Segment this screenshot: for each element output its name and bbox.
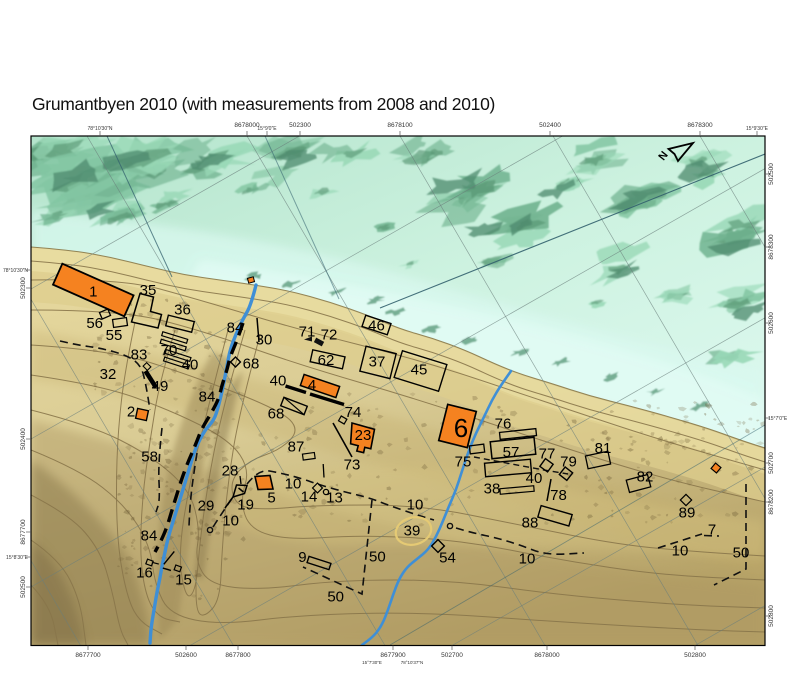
svg-text:36: 36 [174,302,191,319]
svg-text:62: 62 [318,352,335,369]
svg-text:87: 87 [288,439,305,456]
svg-text:10: 10 [285,476,302,493]
svg-text:78°10′37″N: 78°10′37″N [401,660,424,665]
svg-text:75: 75 [455,454,472,471]
svg-text:5: 5 [267,490,275,507]
svg-text:74: 74 [345,404,362,421]
svg-text:15°9′30″E: 15°9′30″E [746,126,769,132]
svg-text:16: 16 [136,565,153,582]
svg-text:19: 19 [237,497,254,514]
svg-text:8677900: 8677900 [380,652,406,659]
svg-text:73: 73 [344,457,361,474]
svg-text:84: 84 [141,528,158,545]
svg-text:8677700: 8677700 [75,652,101,659]
svg-text:8678200: 8678200 [768,489,775,515]
svg-text:8677700: 8677700 [20,519,27,545]
svg-text:78°10′30″N: 78°10′30″N [87,126,112,132]
svg-text:40: 40 [526,470,543,487]
svg-text:72: 72 [321,327,338,344]
svg-text:40: 40 [270,373,287,390]
svg-text:15°7′0″E: 15°7′0″E [768,416,788,422]
svg-text:68: 68 [268,406,285,423]
svg-text:502500: 502500 [768,163,775,185]
svg-text:37: 37 [369,354,386,371]
svg-text:6: 6 [454,413,468,443]
svg-text:56: 56 [86,315,103,332]
svg-text:8678100: 8678100 [387,122,413,129]
svg-text:502700: 502700 [768,452,775,474]
svg-text:502800: 502800 [768,605,775,627]
svg-text:502400: 502400 [539,122,561,129]
svg-text:502300: 502300 [20,277,27,299]
svg-text:84: 84 [227,320,244,337]
svg-text:15°8′30″E: 15°8′30″E [6,555,29,561]
svg-text:54: 54 [439,550,456,567]
svg-text:8677800: 8677800 [225,652,251,659]
svg-text:83: 83 [131,347,148,364]
svg-text:35: 35 [140,282,157,299]
svg-text:8678300: 8678300 [768,234,775,260]
svg-text:502500: 502500 [20,576,27,598]
svg-text:77: 77 [539,446,556,463]
svg-text:89: 89 [679,505,696,522]
svg-text:39: 39 [404,523,421,540]
svg-text:82: 82 [637,469,654,486]
svg-text:46: 46 [368,318,385,335]
svg-text:502400: 502400 [20,428,27,450]
svg-text:13: 13 [326,490,343,507]
svg-text:2: 2 [127,404,135,421]
svg-text:49: 49 [152,378,169,395]
svg-text:45: 45 [411,362,428,379]
svg-text:10: 10 [672,543,689,560]
svg-text:23: 23 [355,427,372,444]
svg-text:10: 10 [519,551,536,568]
svg-text:68: 68 [243,356,260,373]
svg-text:502700: 502700 [441,652,463,659]
svg-text:70: 70 [161,342,178,359]
svg-text:15°7′30″E: 15°7′30″E [362,660,382,665]
svg-text:15: 15 [175,572,192,589]
svg-text:502600: 502600 [768,312,775,334]
svg-text:502800: 502800 [684,652,706,659]
svg-text:58: 58 [141,449,158,466]
svg-text:8678000: 8678000 [534,652,560,659]
svg-text:10: 10 [222,513,239,530]
svg-text:50: 50 [369,549,386,566]
svg-text:14: 14 [301,489,318,506]
svg-text:30: 30 [256,332,273,349]
svg-text:8678000: 8678000 [234,122,260,129]
svg-text:38: 38 [484,481,501,498]
svg-text:78: 78 [550,487,567,504]
svg-text:57: 57 [503,444,520,461]
svg-text:10: 10 [407,497,424,514]
svg-text:40: 40 [182,357,199,374]
svg-text:76: 76 [495,416,512,433]
svg-text:84: 84 [199,389,216,406]
svg-text:1: 1 [89,284,97,301]
svg-text:9: 9 [298,549,306,566]
svg-text:7: 7 [708,522,716,539]
svg-text:8678300: 8678300 [687,122,713,129]
svg-text:50: 50 [733,545,750,562]
svg-text:32: 32 [100,366,117,383]
svg-text:81: 81 [595,440,612,457]
svg-text:71: 71 [299,324,316,341]
svg-text:50: 50 [327,589,344,606]
svg-text:55: 55 [106,327,123,344]
svg-text:502600: 502600 [175,652,197,659]
svg-text:88: 88 [522,515,539,532]
svg-text:15°9′0″E: 15°9′0″E [257,126,277,132]
svg-text:28: 28 [222,463,239,480]
svg-text:4: 4 [308,377,316,394]
svg-text:79: 79 [560,454,577,471]
svg-text:502300: 502300 [289,122,311,129]
svg-text:29: 29 [198,498,215,515]
svg-text:78°10′30″N: 78°10′30″N [3,268,28,274]
